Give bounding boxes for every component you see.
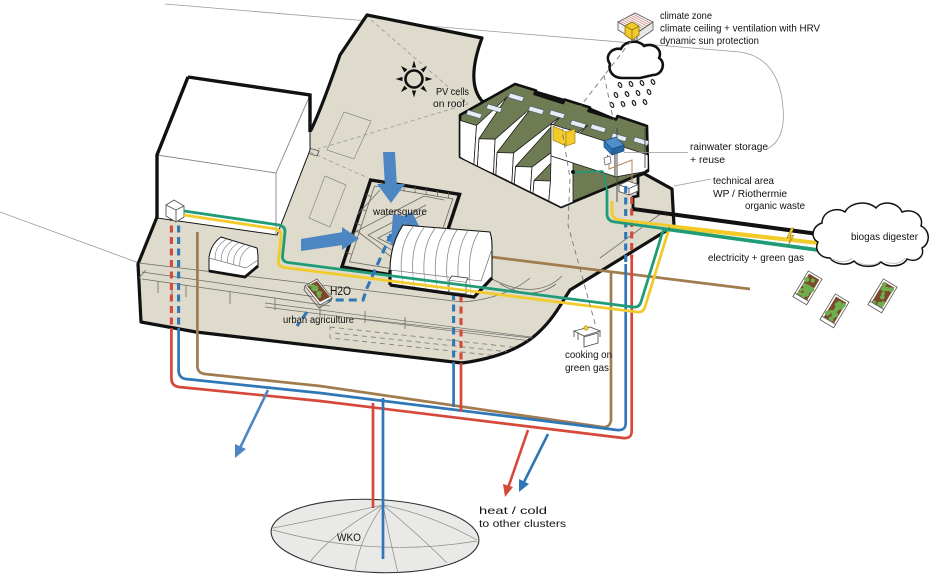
svg-text:watersquare: watersquare (372, 207, 427, 218)
svg-text:climate ceiling + ventilation: climate ceiling + ventilation with HRV (660, 24, 820, 35)
svg-text:WKO: WKO (337, 532, 361, 544)
svg-text:on roof: on roof (433, 99, 465, 110)
svg-text:+ reuse: + reuse (690, 155, 725, 166)
svg-text:biogas digester: biogas digester (851, 232, 919, 243)
svg-text:dynamic sun protection: dynamic sun protection (660, 36, 759, 47)
svg-text:urban agriculture: urban agriculture (283, 315, 354, 326)
svg-text:cooking on: cooking on (565, 350, 612, 361)
svg-text:PV cells: PV cells (436, 87, 469, 98)
svg-text:technical area: technical area (713, 176, 774, 187)
svg-text:electricity + green gas: electricity + green gas (708, 253, 804, 264)
svg-text:climate zone: climate zone (660, 11, 712, 22)
svg-text:heat / cold: heat / cold (479, 506, 547, 517)
svg-text:to other clusters: to other clusters (479, 519, 566, 530)
svg-text:rainwater storage: rainwater storage (690, 142, 768, 153)
svg-text:green gas: green gas (565, 363, 609, 374)
svg-text:organic waste: organic waste (745, 201, 805, 212)
svg-text:WP / Riothermie: WP / Riothermie (713, 189, 787, 200)
svg-text:H2O: H2O (330, 286, 351, 298)
